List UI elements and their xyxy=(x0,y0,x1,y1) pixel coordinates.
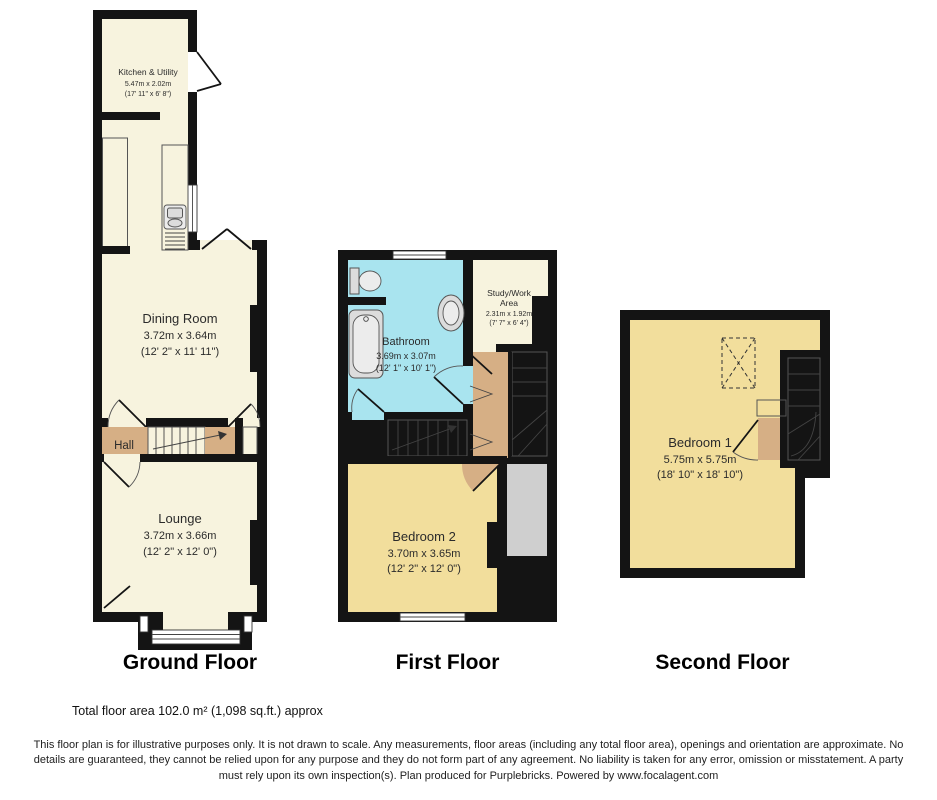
bedroom2-window xyxy=(400,613,465,621)
lounge-label: Lounge xyxy=(158,511,201,526)
sink xyxy=(438,295,464,331)
dining-wall-stub xyxy=(93,246,130,254)
ground-floor-plan: Kitchen & Utility 5.47m x 2.02m (17' 11"… xyxy=(85,0,295,660)
dining-imperial: (12' 2" x 11' 11") xyxy=(141,346,219,358)
dining-metric: 3.72m x 3.64m xyxy=(144,330,217,342)
stairs-door-recess xyxy=(758,418,780,460)
first-floor-plan: Bathroom 3.69m x 3.07m (12' 1" x 10' 1")… xyxy=(330,240,570,640)
bedroom2-top-wall xyxy=(338,456,507,464)
ground-floor-caption: Ground Floor xyxy=(85,651,295,675)
floorplan-page: Kitchen & Utility 5.47m x 2.02m (17' 11"… xyxy=(0,0,937,800)
bathroom-window xyxy=(393,251,446,259)
kitchen-metric: 5.47m x 2.02m xyxy=(125,81,171,88)
kitchen-door-opening xyxy=(188,52,197,92)
bathroom-label: Bathroom xyxy=(382,336,430,348)
bedroom1-label: Bedroom 1 xyxy=(668,435,732,450)
bathroom-left-door-opening xyxy=(352,412,384,420)
lounge-imperial: (12' 2" x 12' 0") xyxy=(143,546,217,558)
study-metric: 2.31m x 1.92m xyxy=(486,311,532,318)
bedroom2-metric: 3.70m x 3.65m xyxy=(388,548,461,560)
bedroom1-imperial: (18' 10" x 18' 10") xyxy=(657,469,743,481)
bathroom-door-opening xyxy=(463,366,473,404)
kitchen-door-swing xyxy=(197,52,221,91)
bedroom2-label: Bedroom 2 xyxy=(392,529,456,544)
disclaimer-text: This floor plan is for illustrative purp… xyxy=(30,738,907,784)
bedroom2-imperial: (12' 2" x 12' 0") xyxy=(387,563,461,575)
study-label-1: Study/Work xyxy=(487,288,532,298)
bathroom-metric: 3.69m x 3.07m xyxy=(376,351,436,361)
kitchen-wall-stub xyxy=(93,112,160,120)
bedroom2-chimney-breast xyxy=(487,522,499,568)
bathroom-wall-stub xyxy=(348,297,386,305)
kitchen-window xyxy=(188,185,197,232)
dining-label: Dining Room xyxy=(142,311,217,326)
kitchen-imperial: (17' 11" x 6' 8") xyxy=(125,91,171,98)
lounge-chimney-breast xyxy=(250,520,267,585)
stair-void-gray xyxy=(507,464,547,556)
dining-chimney-breast xyxy=(250,305,267,372)
second-floor-plan: Bedroom 1 5.75m x 5.75m (18' 10" x 18' 1… xyxy=(600,300,850,590)
total-floor-area: Total floor area 102.0 m² (1,098 sq.ft.)… xyxy=(72,704,323,718)
lounge-metric: 3.72m x 3.66m xyxy=(144,530,217,542)
second-floor-caption: Second Floor xyxy=(620,651,825,675)
bathroom-imperial: (12' 1" x 10' 1") xyxy=(376,363,436,373)
study-label-2: Area xyxy=(500,298,518,308)
bedroom1-metric: 5.75m x 5.75m xyxy=(664,454,737,466)
lounge-door-opening xyxy=(104,454,140,462)
first-floor-caption: First Floor xyxy=(345,651,550,675)
kitchen-label: Kitchen & Utility xyxy=(118,67,178,77)
hall-label: Hall xyxy=(114,440,134,452)
study-imperial: (7' 7" x 6' 4") xyxy=(489,320,528,327)
